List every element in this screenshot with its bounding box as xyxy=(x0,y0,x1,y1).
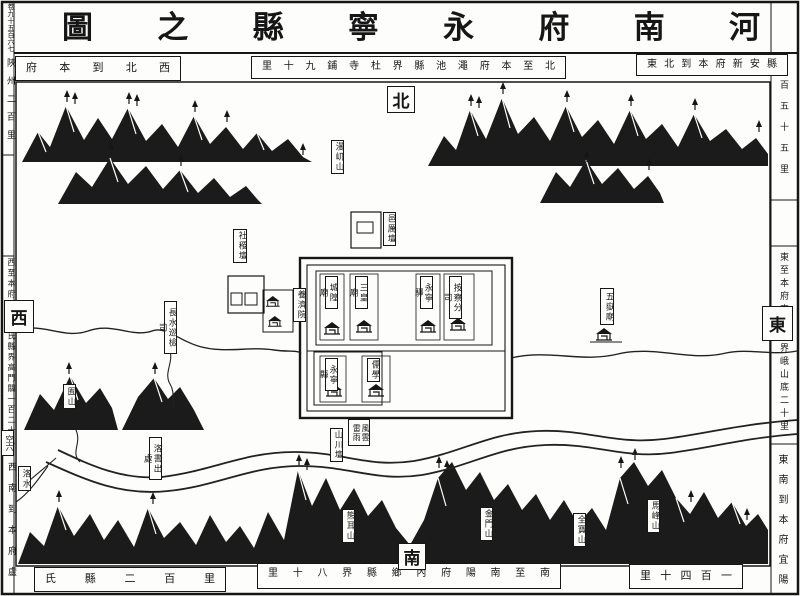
note-northeast-route: 東北到本府新安縣 xyxy=(636,54,788,76)
note-southwest-distance: 氏縣二百里 xyxy=(34,567,226,592)
mountains-west-2 xyxy=(122,378,204,430)
historical-map-yongning-county: 圖之縣寧永府南河 卷九十五百六七 府本到北西 陜州二百里 里十九鋪寺杜界縣池澠府… xyxy=(0,0,800,596)
hill-stream xyxy=(76,430,80,462)
east-stream xyxy=(511,351,797,358)
label-sanhuang-temple: 三皇廟 xyxy=(355,276,368,309)
label-almshouse: 養濟院 xyxy=(293,288,306,322)
compass-west: 西 xyxy=(4,300,34,333)
label-quanbao-mountain: 全寶山 xyxy=(573,513,586,547)
label-xionger-mountain: 熊耳山 xyxy=(342,509,355,543)
mountains-north-east xyxy=(428,98,768,166)
label-manwu-mountain: 漫屼山 xyxy=(331,140,344,174)
label-confucian-school: 儒學 xyxy=(367,358,380,382)
note-southwest-route: 西南到本府盧 xyxy=(3,462,15,588)
leaf-marker-small: 空六 xyxy=(1,430,14,456)
volume-page-marker: 卷九十五百六七 xyxy=(2,3,14,52)
label-mafeng-mountain: 馬峰山 xyxy=(647,499,660,533)
note-northwest-distance: 陜州二百里 xyxy=(2,58,14,148)
label-city-god-temple: 城隍廟 xyxy=(325,276,338,309)
label-luoshu-origin-site: 洛書出處 xyxy=(149,437,162,480)
compass-east: 東 xyxy=(762,306,793,341)
compass-north: 北 xyxy=(387,86,415,113)
label-county-yamen: 永寧縣 xyxy=(325,358,338,391)
label-sheji-altar: 社稷壇 xyxy=(233,229,247,263)
note-northeast-distance: 百五十五里 xyxy=(775,80,787,185)
note-north-route: 里十九鋪寺杜界縣池澠府本至北 xyxy=(251,56,566,79)
label-yongning-post-station: 永寧驛 xyxy=(420,276,433,309)
label-surveillance-branch-office: 按察分司 xyxy=(449,276,462,319)
mountains-north-west xyxy=(22,106,312,162)
mountains-north-west-lower xyxy=(58,158,262,204)
note-west-route: 西至本府陝州盧氏縣界高門關一百二十里 xyxy=(3,258,15,447)
map-title: 圖之縣寧永府南河 xyxy=(62,10,760,47)
luoshui-label-stream xyxy=(30,458,56,480)
label-changshui-police-office: 長水巡檢司 xyxy=(164,301,177,354)
label-yili-altar: 邑厲壇 xyxy=(383,212,396,246)
sheji-altar-enclosure xyxy=(228,276,264,313)
note-east-route: 東至本府宜陽縣界峨山底二十里 xyxy=(775,252,787,434)
note-northwest-route: 府本到北西 xyxy=(15,56,181,81)
mountains-north-east-lower xyxy=(540,160,664,203)
note-southeast-distance: 里十四百一 xyxy=(629,564,743,589)
yili-altar-mound xyxy=(357,222,373,233)
label-you-mountain: 囿山 xyxy=(63,384,76,409)
label-mountains-rivers-altar: 山川壇 xyxy=(330,428,343,462)
sheji-altar-mound-1 xyxy=(231,293,242,305)
sheji-altar-mound-2 xyxy=(245,293,257,305)
label-wind-cloud-thunder-rain-altar: 風雲雷雨 xyxy=(348,419,370,446)
yili-altar-enclosure xyxy=(351,212,381,248)
mountain-ranges xyxy=(18,98,768,564)
label-luo-river: 洛水 xyxy=(18,466,31,491)
note-southeast-route: 東南到本府宜陽 xyxy=(772,454,786,594)
compass-south: 南 xyxy=(398,543,426,570)
label-wuyue-temple: 五嶽廟 xyxy=(600,288,614,325)
building-icons xyxy=(266,296,612,396)
label-jinmen-mountain: 金門山 xyxy=(480,507,493,541)
